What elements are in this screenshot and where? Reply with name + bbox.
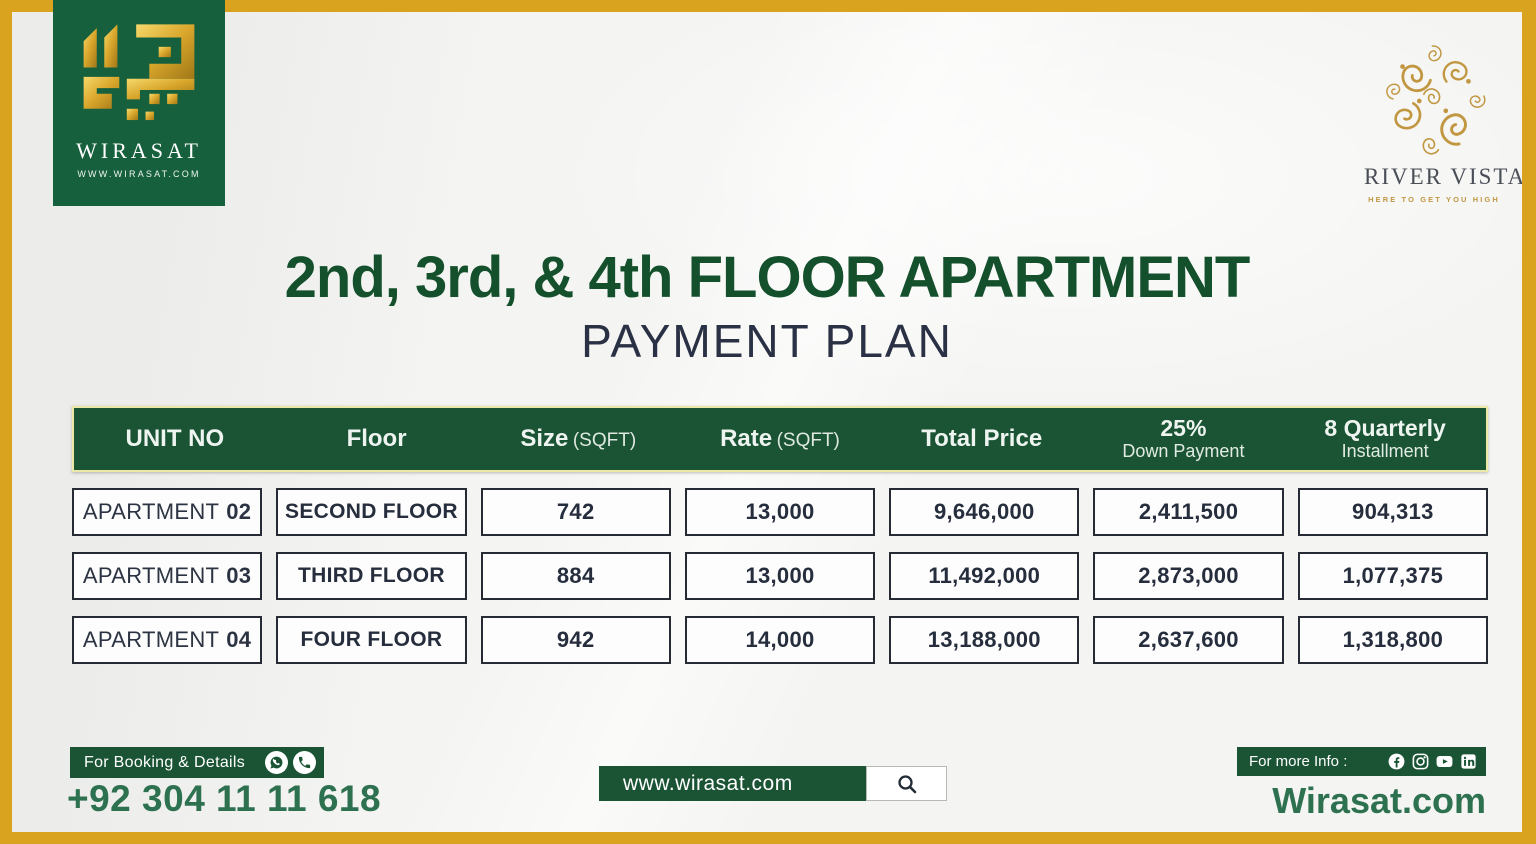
cell-unit-no: APARTMENT04 (72, 616, 262, 664)
cell-rate: 14,000 (685, 616, 875, 664)
wirasat-logo-name: WIRASAT (76, 138, 202, 164)
header-down-payment: 25%Down Payment (1083, 416, 1285, 461)
river-vista-logo: RIVER VISTA HERE TO GET YOU HIGH (1364, 42, 1504, 204)
cell-total-price: 11,492,000 (889, 552, 1079, 600)
website-url[interactable]: www.wirasat.com (599, 766, 866, 801)
cell-size: 742 (481, 488, 671, 536)
page-subtitle: PAYMENT PLAN (12, 314, 1522, 368)
cell-rate: 13,000 (685, 552, 875, 600)
facebook-icon[interactable] (1387, 752, 1406, 771)
header-size: Size (SQFT) (477, 425, 679, 453)
linkedin-icon[interactable] (1459, 752, 1478, 771)
info-label: For more Info : (1249, 753, 1382, 770)
cell-size: 942 (481, 616, 671, 664)
search-icon[interactable] (895, 772, 919, 796)
youtube-icon[interactable] (1435, 752, 1454, 771)
cell-total-price: 9,646,000 (889, 488, 1079, 536)
header-installment: 8 QuarterlyInstallment (1284, 416, 1486, 461)
booking-label: For Booking & Details (84, 754, 260, 772)
wirasat-logo-mark-icon (78, 16, 200, 134)
page-canvas: 2nd, 3rd, & 4th FLOOR APARTMENT PAYMENT … (12, 12, 1522, 832)
table-row: APARTMENT03 THIRD FLOOR 884 13,000 11,49… (72, 552, 1488, 600)
cell-unit-no: APARTMENT03 (72, 552, 262, 600)
cell-floor: FOUR FLOOR (276, 616, 466, 664)
booking-bar: For Booking & Details (70, 747, 324, 778)
header-floor: Floor (276, 425, 478, 453)
whatsapp-icon[interactable] (265, 751, 288, 774)
table-row: APARTMENT04 FOUR FLOOR 942 14,000 13,188… (72, 616, 1488, 664)
cell-installment: 904,313 (1298, 488, 1488, 536)
header-rate: Rate (SQFT) (679, 425, 881, 453)
cell-down-payment: 2,637,600 (1093, 616, 1283, 664)
footer-website-text[interactable]: Wirasat.com (1172, 780, 1486, 822)
cell-down-payment: 2,873,000 (1093, 552, 1283, 600)
cell-installment: 1,077,375 (1298, 552, 1488, 600)
cell-installment: 1,318,800 (1298, 616, 1488, 664)
table-row: APARTMENT02 SECOND FLOOR 742 13,000 9,64… (72, 488, 1488, 536)
header-total-price: Total Price (881, 425, 1083, 453)
page-title: 2nd, 3rd, & 4th FLOOR APARTMENT (12, 244, 1522, 311)
cell-down-payment: 2,411,500 (1093, 488, 1283, 536)
instagram-icon[interactable] (1411, 752, 1430, 771)
booking-phone-number[interactable]: +92 304 11 11 618 (67, 778, 381, 820)
table-header: UNIT NO Floor Size (SQFT) Rate (SQFT) To… (72, 406, 1488, 472)
header-unit-no: UNIT NO (74, 425, 276, 453)
river-vista-name: RIVER VISTA (1364, 164, 1504, 190)
cell-total-price: 13,188,000 (889, 616, 1079, 664)
wirasat-logo-url: WWW.WIRASAT.COM (77, 169, 200, 179)
phone-icon[interactable] (293, 751, 316, 774)
cell-size: 884 (481, 552, 671, 600)
cell-rate: 13,000 (685, 488, 875, 536)
river-vista-mark-icon (1375, 42, 1493, 160)
cell-floor: THIRD FLOOR (276, 552, 466, 600)
cell-unit-no: APARTMENT02 (72, 488, 262, 536)
wirasat-logo-box: WIRASAT WWW.WIRASAT.COM (53, 0, 225, 206)
website-search-bar[interactable]: www.wirasat.com (599, 766, 947, 801)
info-bar: For more Info : (1237, 747, 1486, 776)
search-box[interactable] (866, 766, 947, 801)
payment-table: UNIT NO Floor Size (SQFT) Rate (SQFT) To… (72, 406, 1488, 664)
gold-frame: 2nd, 3rd, & 4th FLOOR APARTMENT PAYMENT … (0, 0, 1536, 844)
cell-floor: SECOND FLOOR (276, 488, 466, 536)
river-vista-tagline: HERE TO GET YOU HIGH (1364, 195, 1504, 204)
